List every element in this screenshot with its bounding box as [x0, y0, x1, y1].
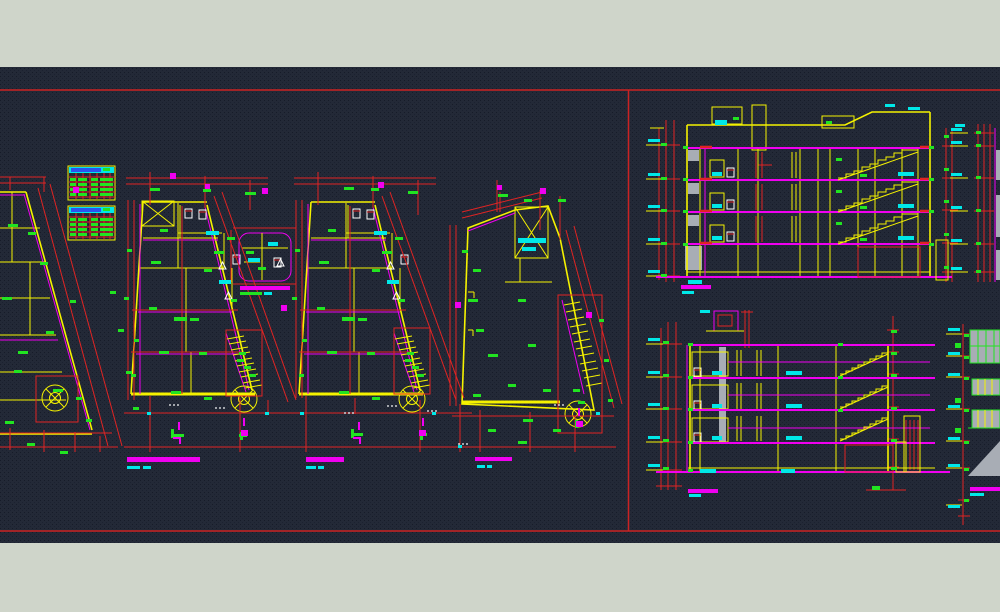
text-smudge [898, 172, 914, 176]
text-smudge [2, 297, 12, 300]
scale-note [682, 291, 694, 294]
text-smudge [951, 267, 962, 270]
text-smudge [374, 231, 387, 235]
text-smudge [60, 451, 68, 454]
text-smudge [476, 329, 484, 332]
text-smudge [206, 231, 219, 235]
text-smudge [18, 351, 28, 354]
text-smudge [174, 434, 184, 437]
text-smudge [891, 467, 897, 470]
text-smudge [976, 242, 981, 245]
dimension-dot-marker [458, 443, 460, 445]
text-smudge [522, 247, 536, 251]
scale-note [264, 292, 272, 295]
text-smudge [661, 177, 667, 180]
text-smudge [327, 351, 337, 354]
dimension-dot-marker [462, 443, 464, 445]
text-smudge [596, 412, 600, 415]
text-smudge [688, 376, 693, 379]
text-smudge [258, 267, 266, 270]
dimension-dot-marker [387, 405, 389, 407]
text-smudge [599, 319, 604, 322]
text-smudge [528, 344, 536, 347]
text-smudge [124, 297, 129, 300]
text-smudge [786, 371, 802, 375]
text-smudge [860, 174, 867, 177]
text-smudge [648, 238, 660, 241]
text-smudge [648, 436, 660, 439]
text-smudge [170, 173, 176, 179]
text-smudge [395, 237, 403, 240]
text-smudge [382, 251, 392, 254]
text-smudge [683, 146, 688, 149]
dimension-dot-marker [435, 410, 437, 412]
text-smudge [712, 404, 722, 408]
text-smudge [976, 131, 981, 134]
text-smudge [944, 233, 949, 236]
text-smudge [891, 352, 897, 355]
text-smudge [951, 206, 962, 209]
text-smudge [328, 229, 336, 232]
text-smudge [262, 188, 268, 194]
text-smudge [46, 331, 54, 334]
dimension-dot-marker [219, 407, 221, 409]
text-smudge [860, 206, 867, 209]
text-smudge [712, 204, 722, 208]
text-smudge [524, 199, 532, 202]
text-smudge [246, 251, 254, 254]
text-smudge [372, 397, 380, 400]
text-smudge [150, 188, 160, 191]
text-smudge [576, 421, 583, 427]
text-smudge [951, 239, 962, 242]
dimension-dot-marker [391, 405, 393, 407]
text-smudge [498, 194, 508, 197]
text-smudge [648, 270, 660, 273]
text-smudge [964, 499, 969, 502]
text-smudge [663, 407, 669, 410]
text-smudge [204, 269, 212, 272]
text-smudge [891, 407, 897, 410]
text-smudge [964, 334, 969, 337]
text-smudge [872, 486, 880, 490]
text-smudge [523, 419, 533, 422]
text-smudge [358, 422, 360, 430]
text-smudge [661, 242, 667, 245]
text-smudge [76, 397, 82, 400]
text-smudge [342, 317, 355, 321]
text-smudge [700, 310, 710, 313]
text-smudge [683, 210, 688, 213]
text-smudge [147, 412, 151, 415]
text-smudge [118, 329, 124, 332]
text-smudge [688, 441, 693, 444]
text-smudge [688, 280, 702, 284]
text-smudge [578, 401, 585, 404]
text-smudge [28, 232, 36, 235]
text-smudge [8, 224, 18, 227]
text-smudge [683, 178, 688, 181]
text-smudge [408, 191, 418, 194]
text-smudge [948, 464, 960, 467]
text-smudge [944, 200, 949, 203]
text-smudge [302, 339, 307, 342]
text-smudge [5, 421, 14, 424]
scale-note [970, 493, 984, 496]
scale-note [318, 466, 324, 469]
drawing-title-bar [127, 457, 200, 462]
text-smudge [417, 374, 424, 377]
text-smudge [836, 158, 842, 161]
text-smudge [951, 128, 962, 131]
text-smudge [249, 374, 256, 377]
text-smudge [412, 366, 419, 369]
text-smudge [604, 359, 609, 362]
schedule-table-1 [68, 166, 115, 200]
dimension-dot-marker [173, 404, 175, 406]
text-smudge [518, 299, 526, 302]
text-smudge [543, 389, 551, 392]
text-smudge [27, 443, 35, 446]
text-smudge [948, 437, 960, 440]
text-smudge [300, 412, 304, 415]
workspace-margin-bottom [0, 543, 1000, 612]
text-smudge [786, 404, 802, 408]
text-smudge [231, 299, 237, 302]
text-smudge [53, 389, 63, 392]
text-smudge [908, 107, 920, 110]
text-smudge [419, 430, 426, 436]
text-smudge [944, 168, 949, 171]
workspace-margin-top [0, 0, 1000, 67]
text-smudge [929, 210, 934, 213]
text-smudge [86, 419, 92, 422]
text-smudge [838, 376, 843, 379]
text-smudge [488, 354, 498, 357]
text-smudge [127, 249, 132, 252]
text-smudge [73, 187, 79, 193]
text-smudge [372, 269, 380, 272]
text-smudge [239, 352, 246, 355]
text-smudge [508, 384, 516, 387]
text-smudge [159, 351, 169, 354]
text-smudge [244, 366, 251, 369]
text-smudge [387, 280, 399, 284]
text-smudge [944, 266, 949, 269]
drawing-title-bar [970, 487, 1000, 491]
text-smudge [353, 437, 361, 439]
text-smudge [948, 505, 960, 508]
text-smudge [151, 261, 161, 264]
text-smudge [838, 409, 843, 412]
text-smudge [826, 121, 832, 124]
text-smudge [715, 120, 727, 125]
dimension-dot-marker [562, 404, 564, 406]
text-smudge [243, 418, 245, 426]
drawing-title-bar [240, 286, 290, 290]
dimension-dot-marker [348, 412, 350, 414]
text-smudge [898, 236, 914, 240]
text-smudge [359, 439, 361, 444]
text-smudge [573, 389, 580, 392]
text-smudge [265, 412, 269, 415]
text-smudge [237, 359, 244, 362]
text-smudge [558, 199, 566, 202]
drawing-canvas[interactable] [0, 0, 1000, 612]
text-smudge [241, 430, 248, 436]
text-smudge [648, 205, 660, 208]
text-smudge [836, 190, 842, 193]
text-smudge [838, 343, 843, 346]
text-smudge [948, 373, 960, 376]
text-smudge [458, 445, 462, 448]
text-smudge [339, 391, 349, 394]
text-smudge [317, 307, 325, 310]
text-smudge [227, 237, 235, 240]
dimension-dot-marker [223, 407, 225, 409]
text-smudge [648, 403, 660, 406]
text-smudge [955, 428, 961, 433]
drawing-title-bar [681, 285, 711, 289]
dimension-dot-marker [344, 412, 346, 414]
text-smudge [473, 269, 481, 272]
text-smudge [399, 299, 405, 302]
text-smudge [407, 352, 414, 355]
text-smudge [171, 429, 174, 438]
text-smudge [663, 467, 669, 470]
scale-note [240, 292, 262, 295]
text-smudge [955, 124, 965, 127]
text-smudge [712, 371, 722, 375]
drawing-title-bar [688, 489, 718, 493]
text-smudge [351, 429, 354, 438]
text-smudge [553, 429, 561, 432]
text-smudge [898, 204, 914, 208]
text-smudge [205, 184, 210, 189]
text-smudge [468, 299, 478, 302]
scale-note [127, 466, 140, 469]
text-smudge [951, 173, 962, 176]
text-smudge [648, 139, 660, 142]
dimension-dot-marker [431, 410, 433, 412]
text-smudge [712, 236, 722, 240]
text-smudge [648, 338, 660, 341]
drawing-title-bar [475, 457, 512, 461]
text-smudge [358, 318, 367, 321]
dimension-dot-marker [352, 412, 354, 414]
text-smudge [219, 280, 231, 284]
text-smudge [661, 209, 667, 212]
text-smudge [190, 318, 199, 321]
text-smudge [178, 422, 180, 430]
text-smudge [929, 146, 934, 149]
text-smudge [174, 317, 187, 321]
drawing-title-bar [306, 457, 344, 462]
scale-note [487, 465, 492, 468]
text-smudge [179, 439, 181, 444]
text-smudge [648, 371, 660, 374]
text-smudge [891, 374, 897, 377]
text-smudge [688, 408, 693, 411]
text-smudge [951, 141, 962, 144]
text-smudge [661, 143, 667, 146]
text-smudge [955, 343, 961, 348]
dimension-dot-marker [466, 443, 468, 445]
text-smudge [661, 274, 667, 277]
text-smudge [405, 359, 412, 362]
text-smudge [455, 302, 461, 308]
text-smudge [245, 192, 256, 195]
text-smudge [964, 441, 969, 444]
text-smudge [688, 469, 693, 472]
text-smudge [976, 176, 981, 179]
text-smudge [948, 405, 960, 408]
text-smudge [299, 374, 304, 377]
text-smudge [473, 394, 481, 397]
text-smudge [964, 409, 969, 412]
text-smudge [683, 243, 688, 246]
text-smudge [422, 418, 424, 426]
text-smudge [663, 374, 669, 377]
text-smudge [110, 291, 116, 294]
text-smudge [40, 262, 48, 265]
text-smudge [586, 312, 592, 318]
text-smudge [432, 412, 436, 415]
dimension-dot-marker [169, 404, 171, 406]
text-smudge [281, 305, 287, 311]
scale-note [306, 466, 316, 469]
text-smudge [712, 172, 722, 176]
text-smudge [540, 188, 546, 194]
text-smudge [199, 352, 207, 355]
text-smudge [295, 249, 300, 252]
scale-note [477, 465, 485, 468]
text-smudge [344, 187, 354, 190]
text-smudge [204, 397, 212, 400]
text-smudge [964, 356, 969, 359]
text-smudge [929, 243, 934, 246]
text-smudge [160, 229, 168, 232]
text-smudge [700, 469, 716, 473]
text-smudge [126, 371, 132, 374]
text-smudge [891, 439, 897, 442]
text-smudge [268, 242, 278, 246]
text-smudge [319, 261, 329, 264]
dimension-dot-marker [395, 405, 397, 407]
schedule-table-2 [68, 206, 115, 240]
text-smudge [134, 339, 139, 342]
text-smudge [976, 270, 981, 273]
text-smudge [518, 441, 527, 444]
text-smudge [712, 436, 722, 440]
text-smudge [353, 433, 363, 436]
text-smudge [929, 178, 934, 181]
dimension-dot-marker [215, 407, 217, 409]
text-smudge [948, 352, 960, 355]
text-smudge [786, 436, 802, 440]
dimension-dot-marker [558, 404, 560, 406]
dimension-dot-marker [177, 404, 179, 406]
text-smudge [964, 377, 969, 380]
dimension-dot-marker [427, 410, 429, 412]
text-smudge [171, 391, 181, 394]
text-smudge [948, 328, 960, 331]
text-smudge [955, 398, 961, 403]
text-smudge [14, 370, 22, 373]
text-smudge [497, 185, 502, 190]
text-smudge [836, 222, 842, 225]
text-smudge [964, 468, 969, 471]
text-smudge [518, 238, 546, 243]
text-smudge [860, 238, 867, 241]
text-smudge [133, 407, 139, 410]
text-smudge [371, 188, 379, 191]
text-smudge [488, 429, 496, 432]
text-smudge [663, 439, 669, 442]
text-smudge [203, 189, 211, 192]
text-smudge [292, 297, 297, 300]
text-smudge [367, 352, 375, 355]
text-smudge [648, 464, 660, 467]
text-smudge [462, 250, 468, 253]
text-smudge [885, 104, 895, 107]
text-smudge [976, 209, 981, 212]
scale-note [689, 494, 701, 497]
text-smudge [578, 408, 580, 416]
text-smudge [173, 437, 181, 439]
text-smudge [70, 300, 76, 303]
text-smudge [944, 135, 949, 138]
text-smudge [378, 182, 384, 188]
text-smudge [781, 469, 795, 473]
cad-application-window [0, 0, 1000, 612]
text-smudge [608, 399, 613, 402]
text-smudge [976, 144, 981, 147]
text-smudge [149, 307, 157, 310]
text-smudge [891, 330, 897, 333]
scale-note [143, 466, 151, 469]
dimension-dot-marker [554, 404, 556, 406]
text-smudge [131, 374, 136, 377]
text-smudge [648, 173, 660, 176]
text-smudge [688, 343, 693, 346]
text-smudge [248, 258, 260, 262]
text-smudge [733, 117, 739, 120]
text-smudge [214, 251, 224, 254]
text-smudge [663, 341, 669, 344]
